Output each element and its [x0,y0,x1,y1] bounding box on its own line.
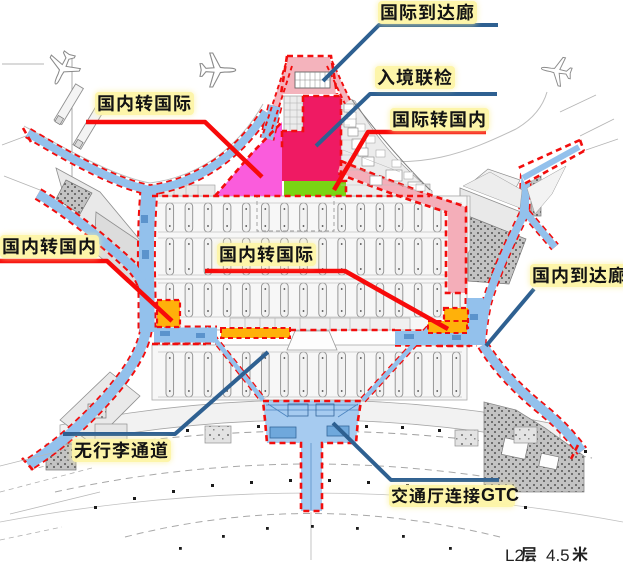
svg-text:L2: L2 [505,546,524,565]
svg-text:4.5: 4.5 [546,546,570,565]
svg-text:GTC: GTC [481,485,519,505]
